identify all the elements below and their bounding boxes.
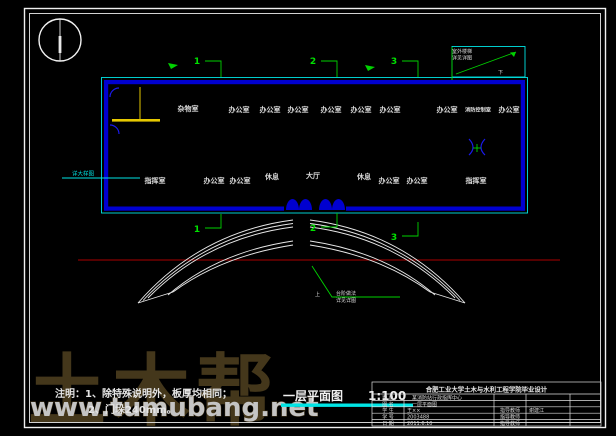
section-number: 1 xyxy=(194,57,200,67)
wall-right xyxy=(521,80,525,211)
tb-label: 题 目 xyxy=(382,395,394,401)
stair-direction-label: 下 xyxy=(498,70,503,76)
side-note: 详大样图 xyxy=(72,170,95,178)
room-label: 办公室 xyxy=(321,105,342,114)
tb-label: 指导教师 xyxy=(500,420,520,427)
tb-label: 日 期 xyxy=(382,421,394,427)
figure-label: 一层平面图 xyxy=(283,389,343,403)
room-label: 杂物室 xyxy=(178,104,199,113)
section-number: 2 xyxy=(310,57,316,67)
tb-label: 指导教师 xyxy=(500,407,520,414)
room-label: 消防控制室 xyxy=(465,106,491,114)
steps-note: 详见详图 xyxy=(336,297,356,304)
ext-stair-note: 室外楼梯 xyxy=(452,48,472,55)
compass-needle-body xyxy=(59,36,62,53)
room-label: 休息 xyxy=(264,172,279,181)
section-number: 1 xyxy=(194,225,200,235)
room-label: 办公室 xyxy=(260,105,281,114)
room-label: 指挥室 xyxy=(145,176,166,185)
room-label: 办公室 xyxy=(499,105,520,114)
wall-bottom-left xyxy=(104,207,284,211)
notes-line-1: 注明：1、除特殊说明外，板厚均相同； xyxy=(55,387,232,400)
tb-label: 指导教师 xyxy=(500,414,520,421)
tb-label: 图 名 xyxy=(382,401,394,408)
notes-line-2: 2、门垛240mm。 xyxy=(88,403,177,416)
steps-note: 台阶做法 xyxy=(336,290,356,297)
room-label: 办公室 xyxy=(288,105,309,114)
section-number: 3 xyxy=(391,233,397,243)
tb-value: 2003488 xyxy=(407,415,429,421)
room-label: 办公室 xyxy=(407,176,428,185)
section-number: 2 xyxy=(310,224,316,234)
room-label: 办公室 xyxy=(379,176,400,185)
room-label: 办公室 xyxy=(204,176,225,185)
ext-stair-note: 详见详图 xyxy=(452,55,472,62)
room-label: 办公室 xyxy=(380,105,401,114)
room-label: 办公室 xyxy=(351,105,372,114)
wall-bottom-right xyxy=(346,207,525,211)
tb-value: 王×× xyxy=(407,408,420,414)
floor-plan-canvas: 土木帮 www.tumubang.net xyxy=(0,0,616,436)
tb-value: 一层平面图 xyxy=(412,402,437,408)
steps-direction-label: 上 xyxy=(315,291,320,298)
cad-drawing-viewport: 土木帮 www.tumubang.net xyxy=(0,0,616,436)
room-label: 指挥室 xyxy=(466,176,487,185)
room-label: 办公室 xyxy=(229,105,250,114)
room-label: 办公室 xyxy=(437,105,458,114)
wall-left xyxy=(104,80,108,211)
room-label: 办公室 xyxy=(230,176,251,185)
title-block-header: 合肥工业大学土木与水利工程学院毕业设计 xyxy=(425,385,548,394)
toilet-counter xyxy=(112,119,160,122)
room-label: 休息 xyxy=(356,172,371,181)
tb-label: 学 号 xyxy=(382,414,394,421)
tb-value: 2011.6.10 xyxy=(407,421,432,427)
tb-value: 谢建江 xyxy=(529,407,544,414)
tb-label: 学 生 xyxy=(382,407,394,414)
wall-top xyxy=(104,80,525,84)
section-number: 3 xyxy=(391,57,397,67)
tb-value: 某消防站行政指挥中心 xyxy=(412,394,462,401)
room-label: 大厅 xyxy=(306,171,320,180)
